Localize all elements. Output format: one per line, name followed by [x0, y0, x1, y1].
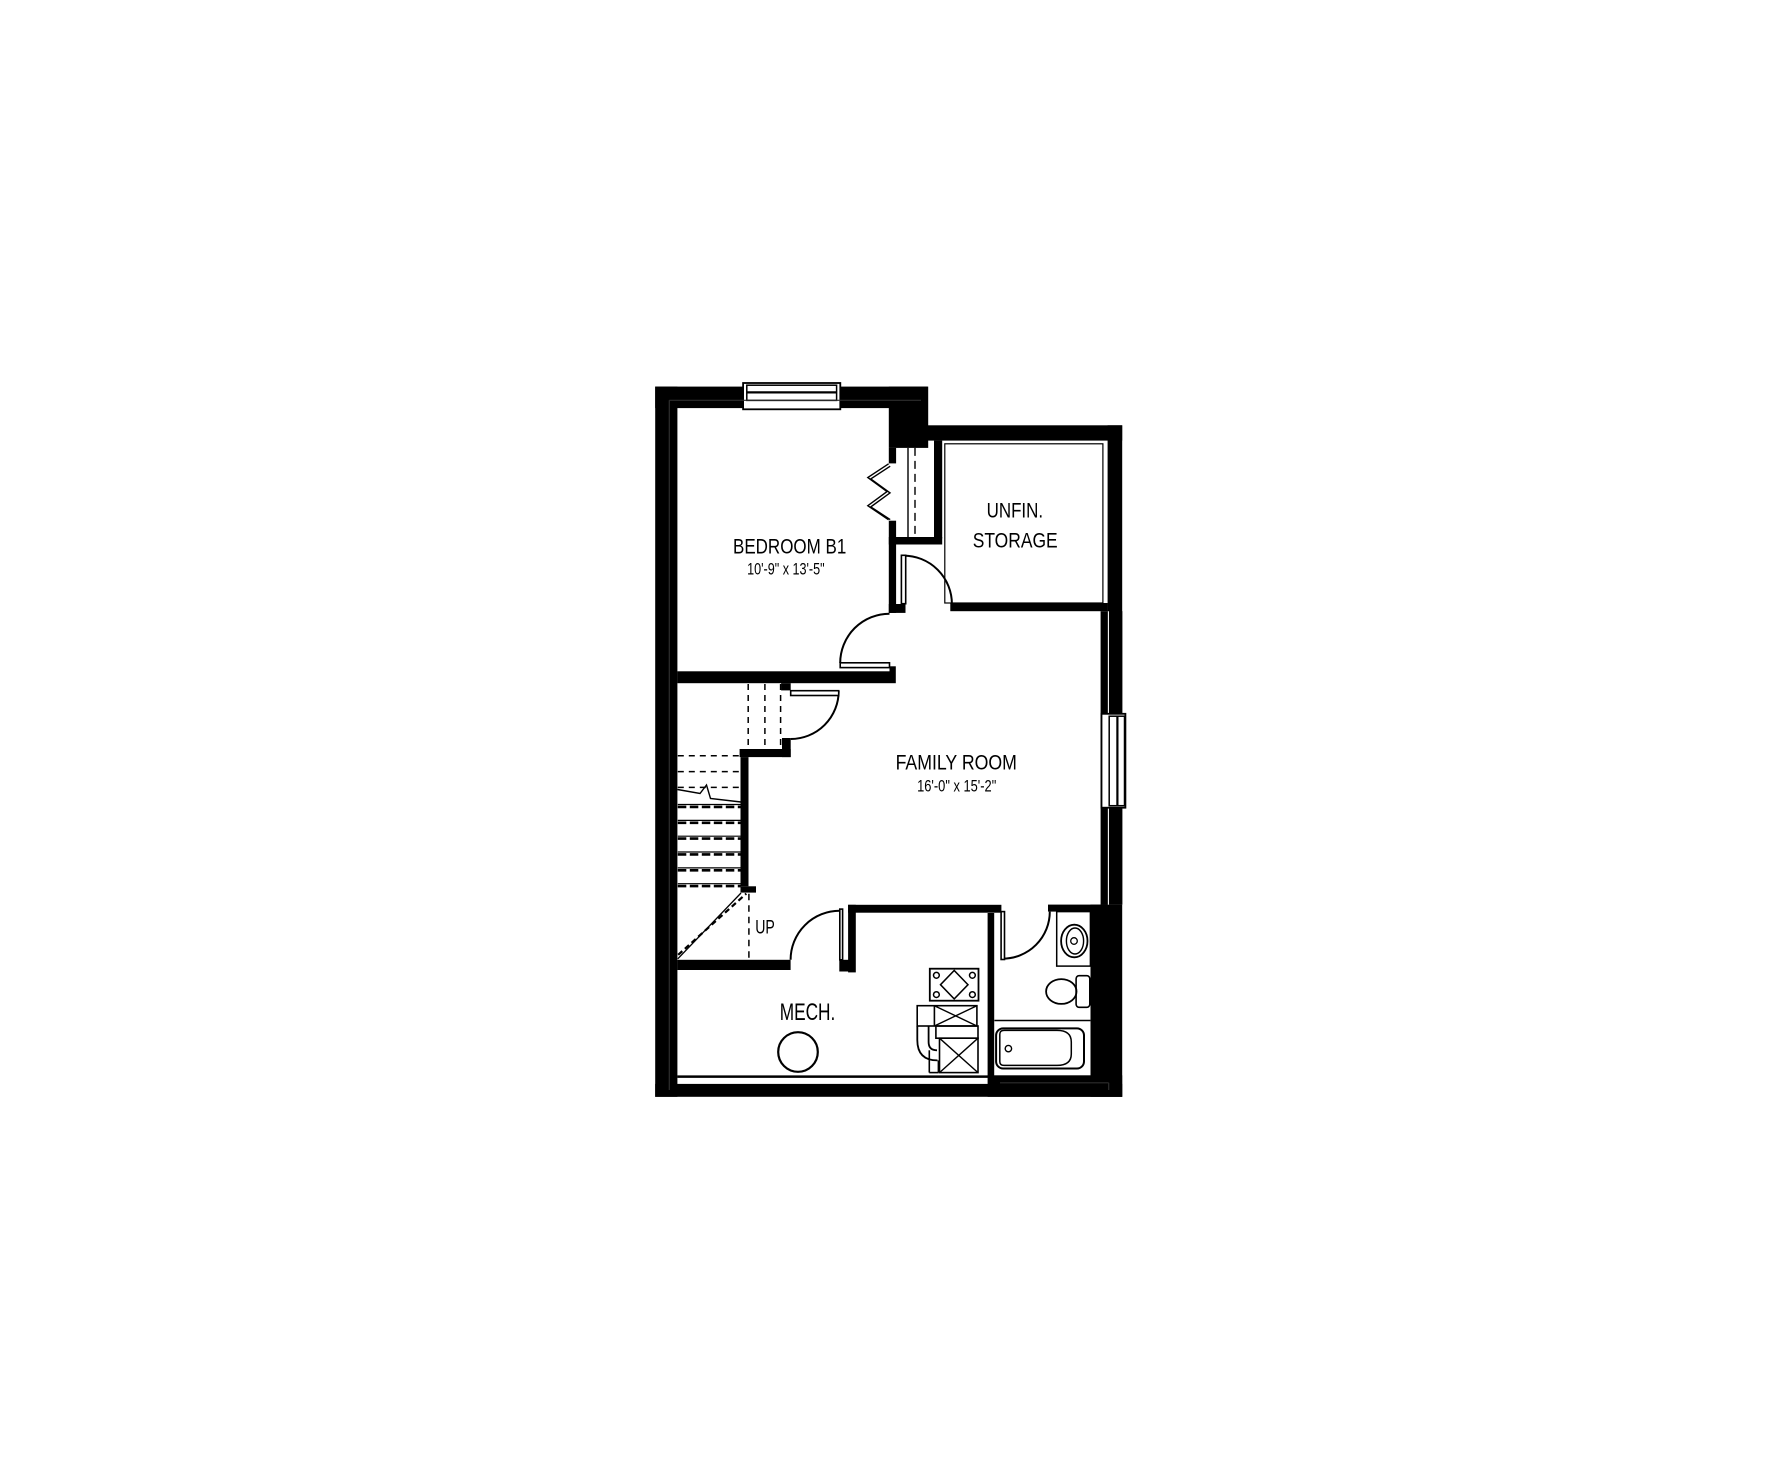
svg-text:FAMILY ROOM: FAMILY ROOM — [896, 750, 1017, 775]
svg-text:10'-9" x 13'-5": 10'-9" x 13'-5" — [747, 560, 825, 579]
svg-text:UP: UP — [755, 917, 775, 939]
svg-text:MECH.: MECH. — [780, 1000, 836, 1026]
svg-text:UNFIN.: UNFIN. — [987, 497, 1044, 522]
svg-text:16'-0" x 15'-2": 16'-0" x 15'-2" — [917, 776, 996, 795]
svg-text:STORAGE: STORAGE — [973, 528, 1058, 553]
svg-text:BEDROOM B1: BEDROOM B1 — [733, 534, 846, 559]
